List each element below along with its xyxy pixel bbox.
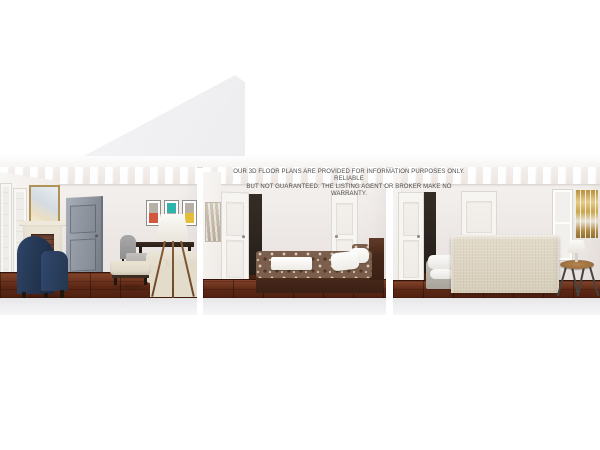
neutral-canvas-art — [205, 202, 221, 242]
tripod-floor-lamp-shade — [156, 214, 189, 241]
ottoman-leg — [144, 278, 147, 285]
wall-art-frame — [146, 200, 161, 226]
open-white-door — [398, 192, 424, 286]
disclaimer-text: OUR 3D FLOOR PLANS ARE PROVIDED FOR INFO… — [228, 169, 470, 199]
door-panel — [466, 201, 492, 233]
floor-slab-edge — [393, 298, 600, 315]
door-panel — [336, 203, 353, 235]
art-swatch — [149, 213, 158, 223]
cream-ottoman — [110, 261, 151, 275]
beige-upholstered-bed-back — [451, 235, 559, 293]
door-panel — [70, 204, 96, 233]
art-swatch — [167, 203, 176, 213]
art-swatch — [149, 203, 158, 213]
art-swatch — [185, 213, 194, 223]
table-lamp-stem — [575, 253, 578, 262]
door-panel — [403, 202, 419, 236]
floor-slab-edge — [0, 298, 197, 315]
window-mullion — [555, 222, 570, 224]
open-white-door — [221, 192, 249, 287]
chair-leg — [44, 293, 48, 298]
door-handle — [242, 235, 245, 238]
gray-paneled-door — [66, 196, 103, 279]
autumn-trees-painting — [575, 190, 598, 238]
disclaimer-line-1: OUR 3D FLOOR PLANS ARE PROVIDED FOR INFO… — [228, 169, 470, 184]
art-swatch — [185, 203, 194, 213]
tripod-lamp-leg — [172, 241, 174, 298]
door-panel — [403, 240, 419, 278]
door-panel — [226, 202, 244, 237]
disclaimer-line-2: BUT NOT GUARANTEED. THE LISTING AGENT OR… — [228, 184, 470, 199]
navy-wingback-chair-arm — [41, 251, 68, 291]
door-handle — [417, 235, 420, 238]
white-folded-throw — [271, 257, 312, 270]
ottoman-leg — [114, 278, 117, 285]
chair-leg — [22, 292, 26, 298]
upper-storey-wedge — [82, 75, 245, 157]
floor-plan-render: OUR 3D FLOOR PLANS ARE PROVIDED FOR INFO… — [0, 0, 600, 450]
door-panel — [70, 238, 96, 271]
table-lamp-shade — [567, 240, 586, 253]
white-pillow — [330, 250, 360, 271]
floor-slab-edge — [203, 298, 386, 315]
door-panel — [226, 240, 244, 279]
living-room-section — [0, 167, 197, 298]
door-handle — [95, 234, 98, 237]
door-handle — [335, 235, 338, 238]
chair-leg — [60, 290, 64, 298]
